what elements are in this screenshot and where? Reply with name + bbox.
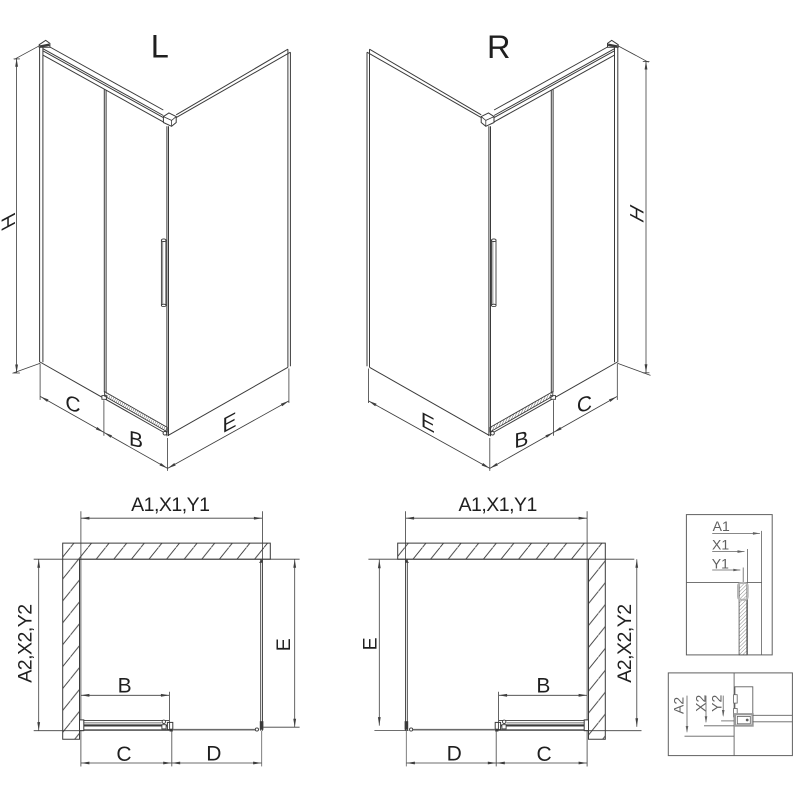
svg-text:C: C xyxy=(577,391,592,418)
svg-text:B: B xyxy=(129,426,143,453)
svg-text:Y2: Y2 xyxy=(709,695,725,712)
svg-text:B: B xyxy=(514,426,528,453)
svg-text:D: D xyxy=(447,743,462,766)
svg-text:L: L xyxy=(151,29,169,65)
svg-text:X1: X1 xyxy=(712,537,729,553)
svg-text:E: E xyxy=(360,637,382,650)
svg-text:A1: A1 xyxy=(713,518,730,534)
svg-text:A1,X1,Y1: A1,X1,Y1 xyxy=(131,494,209,516)
svg-text:D: D xyxy=(206,743,221,766)
svg-text:C: C xyxy=(537,743,552,766)
svg-text:B: B xyxy=(118,675,132,698)
svg-text:A2,X2,Y2: A2,X2,Y2 xyxy=(614,604,636,682)
svg-text:A1,X1,Y1: A1,X1,Y1 xyxy=(459,494,537,516)
svg-text:Y1: Y1 xyxy=(712,556,729,572)
svg-text:E: E xyxy=(273,638,295,651)
svg-text:C: C xyxy=(65,391,80,418)
svg-text:A2: A2 xyxy=(670,697,686,714)
svg-text:R: R xyxy=(487,29,510,65)
svg-text:C: C xyxy=(116,743,131,766)
svg-text:B: B xyxy=(536,675,550,698)
svg-text:A2,X2,Y2: A2,X2,Y2 xyxy=(14,604,36,682)
